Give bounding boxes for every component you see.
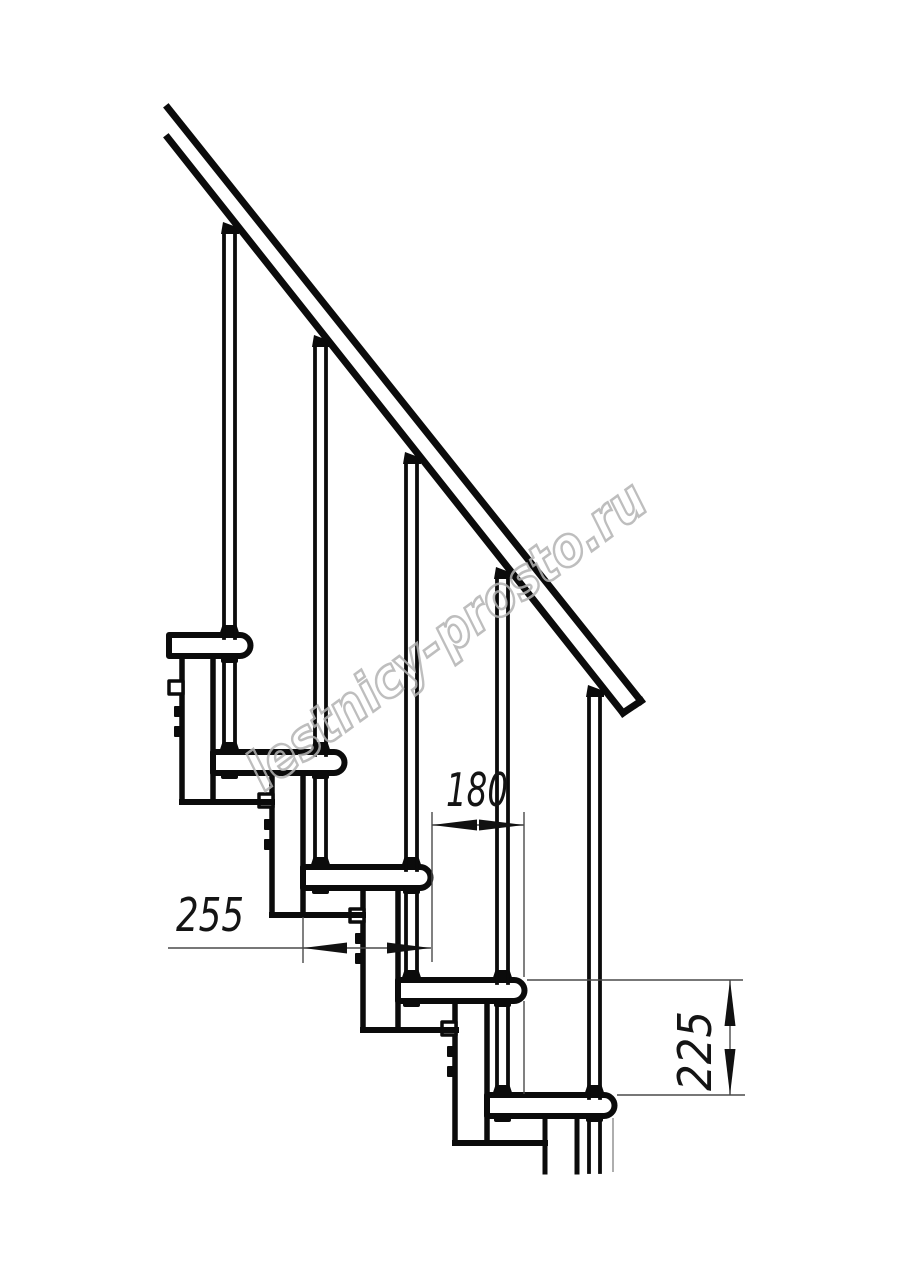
arrow-down-icon — [725, 1049, 736, 1095]
nut-icon — [494, 1115, 511, 1122]
column-body — [182, 656, 213, 802]
nut-icon — [586, 1115, 603, 1122]
mount-tab — [169, 681, 183, 694]
bolt-icon — [355, 933, 364, 944]
support-column-3 — [350, 888, 398, 1030]
bolt-icon — [174, 706, 183, 717]
bolt-icon — [355, 953, 364, 964]
bolt-icon — [447, 1046, 456, 1057]
staircase-drawing: 255 180 225 lestnicy-prosto.ru — [0, 0, 914, 1280]
technical-drawing-canvas: 255 180 225 lestnicy-prosto.ru — [0, 0, 914, 1280]
arrow-left-icon — [303, 943, 347, 954]
nut-icon — [312, 887, 329, 894]
collar — [492, 970, 514, 982]
arrow-right-icon — [479, 820, 524, 831]
baluster-5 — [586, 685, 604, 1098]
bolt-icon — [447, 1066, 456, 1077]
nut-icon — [312, 772, 329, 779]
arrow-up-icon — [725, 980, 736, 1026]
dimension-value-255: 255 — [176, 888, 244, 942]
arrow-left-icon — [432, 820, 477, 831]
tread-3 — [303, 867, 431, 888]
bolt-icon — [264, 819, 273, 830]
collar — [492, 1085, 514, 1097]
tread-4 — [398, 980, 525, 1001]
tread-5 — [487, 1095, 615, 1116]
tread-1 — [169, 635, 251, 656]
collar — [584, 1085, 606, 1097]
bolt-icon — [174, 726, 183, 737]
dimension-step-rise: 225 — [527, 980, 745, 1095]
dimension-value-225: 225 — [668, 1011, 722, 1091]
collar — [401, 970, 423, 982]
nut-icon — [403, 1000, 420, 1007]
nut-icon — [403, 887, 420, 894]
column-body — [363, 888, 398, 1030]
dimension-value-180: 180 — [446, 763, 508, 817]
baluster-1 — [221, 222, 239, 638]
support-column-1 — [169, 656, 213, 802]
handrail-end-cap — [623, 701, 641, 713]
support-column-5-cropped — [545, 1117, 613, 1172]
watermark-text: lestnicy-prosto.ru — [234, 468, 658, 803]
collar — [310, 857, 332, 869]
nut-icon — [221, 772, 238, 779]
support-column-4 — [442, 1001, 487, 1143]
column-body — [455, 1001, 487, 1143]
nut-icon — [221, 656, 238, 663]
collar — [401, 857, 423, 869]
nut-icon — [494, 1000, 511, 1007]
bolt-icon — [264, 839, 273, 850]
arrow-right-icon — [387, 943, 431, 954]
collar — [219, 625, 241, 637]
